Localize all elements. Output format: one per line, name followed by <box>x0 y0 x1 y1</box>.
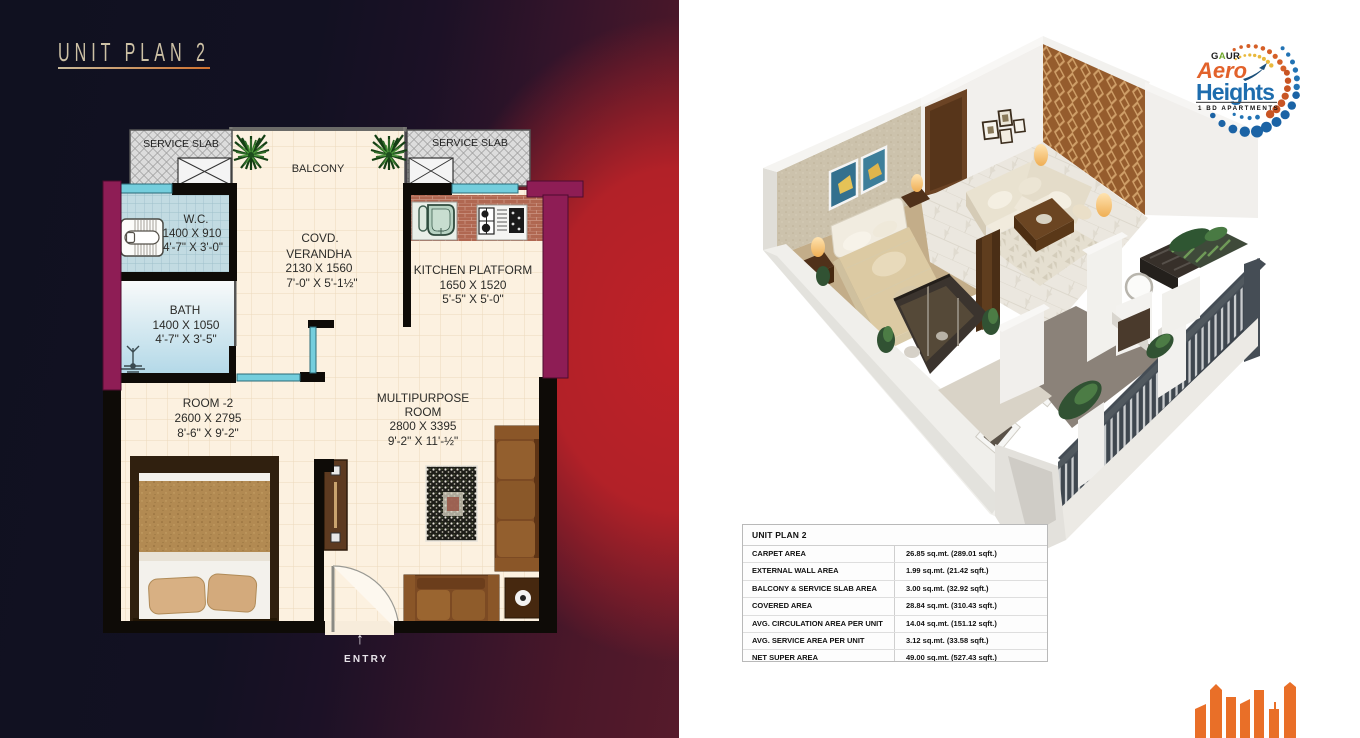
svg-text:1 BD APARTMENTS: 1 BD APARTMENTS <box>1198 105 1279 112</box>
svg-text:Heights: Heights <box>1196 79 1274 105</box>
